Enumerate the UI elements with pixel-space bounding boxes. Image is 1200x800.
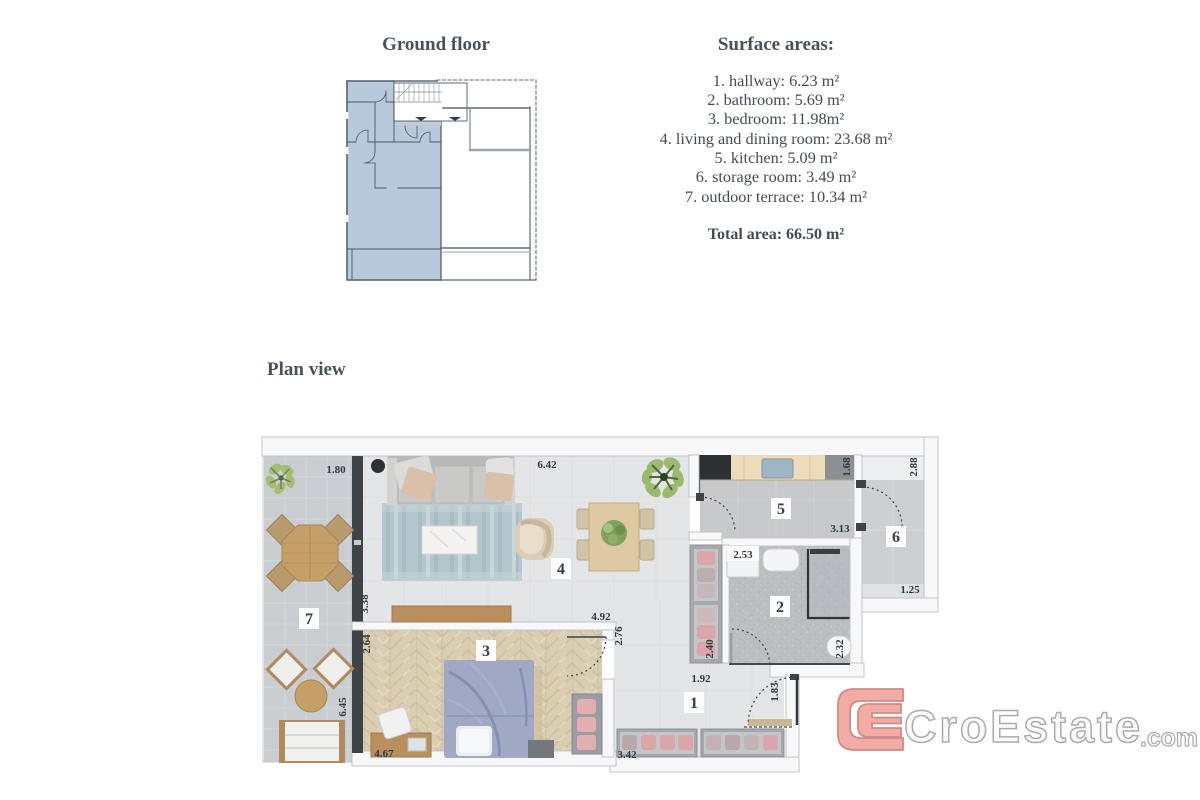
svg-text:7: 7	[305, 611, 313, 628]
svg-text:4.67: 4.67	[374, 748, 394, 760]
svg-text:1. hallway: 6.23 m²: 1. hallway: 6.23 m²	[713, 71, 840, 90]
svg-text:6.42: 6.42	[537, 459, 557, 471]
svg-text:3.38: 3.38	[359, 594, 371, 614]
svg-text:3.13: 3.13	[830, 523, 850, 535]
svg-text:1.68: 1.68	[841, 457, 853, 477]
svg-text:1.25: 1.25	[900, 584, 920, 596]
svg-text:Plan view: Plan view	[267, 359, 346, 380]
svg-text:1: 1	[690, 695, 698, 712]
svg-text:CroEstate: CroEstate	[904, 701, 1141, 752]
svg-text:Surface areas:: Surface areas:	[718, 34, 834, 55]
svg-text:2.64: 2.64	[361, 634, 373, 654]
svg-text:1.92: 1.92	[691, 673, 711, 685]
svg-text:2. bathroom: 5.69 m²: 2. bathroom: 5.69 m²	[707, 90, 844, 109]
svg-text:7. outdoor terrace: 10.34 m²: 7. outdoor terrace: 10.34 m²	[685, 187, 867, 206]
svg-text:2.32: 2.32	[834, 639, 846, 659]
svg-text:4: 4	[557, 561, 565, 578]
svg-text:6. storage room: 3.49 m²: 6. storage room: 3.49 m²	[696, 167, 857, 186]
svg-text:6: 6	[892, 529, 900, 546]
svg-text:5: 5	[777, 501, 785, 518]
svg-text:4. living and dining room: 23.: 4. living and dining room: 23.68 m²	[660, 129, 893, 148]
svg-text:1.80: 1.80	[326, 464, 346, 476]
svg-text:2.53: 2.53	[733, 549, 753, 561]
svg-text:4.92: 4.92	[591, 611, 611, 623]
svg-text:2.40: 2.40	[704, 639, 716, 659]
svg-text:2.88: 2.88	[908, 457, 920, 477]
svg-text:.com: .com	[1140, 724, 1198, 752]
svg-text:3: 3	[482, 643, 490, 660]
svg-text:1.83: 1.83	[769, 682, 781, 702]
svg-text:2: 2	[776, 599, 784, 616]
svg-text:3.42: 3.42	[617, 749, 637, 761]
svg-text:2.76: 2.76	[613, 626, 625, 646]
svg-text:3. bedroom: 11.98m²: 3. bedroom: 11.98m²	[708, 109, 844, 128]
svg-text:5. kitchen: 5.09 m²: 5. kitchen: 5.09 m²	[715, 148, 838, 167]
svg-text:6.45: 6.45	[337, 697, 349, 717]
svg-text:Total area: 66.50 m²: Total area: 66.50 m²	[708, 226, 845, 243]
svg-text:Ground floor: Ground floor	[382, 34, 490, 55]
